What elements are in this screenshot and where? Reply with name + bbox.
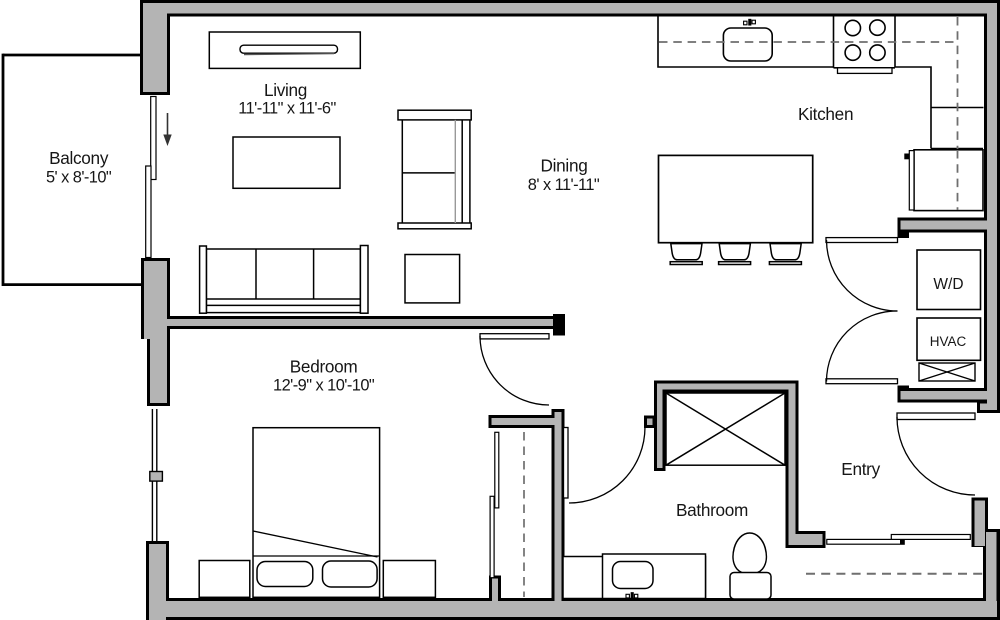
svg-text:HVAC: HVAC bbox=[930, 334, 967, 349]
svg-text:Living: Living bbox=[264, 80, 307, 100]
svg-text:Balcony: Balcony bbox=[49, 148, 109, 168]
svg-text:W/D: W/D bbox=[933, 276, 963, 293]
svg-text:11'-11" x 11'-6": 11'-11" x 11'-6" bbox=[238, 100, 336, 118]
svg-text:8' x 11'-11": 8' x 11'-11" bbox=[528, 176, 600, 194]
svg-text:Kitchen: Kitchen bbox=[798, 104, 853, 124]
svg-text:Dining: Dining bbox=[541, 156, 588, 176]
svg-text:Bedroom: Bedroom bbox=[290, 356, 358, 376]
svg-text:Entry: Entry bbox=[841, 459, 880, 479]
svg-text:5' x 8'-10": 5' x 8'-10" bbox=[46, 169, 112, 187]
svg-text:Bathroom: Bathroom bbox=[676, 500, 748, 520]
svg-text:12'-9" x 10'-10": 12'-9" x 10'-10" bbox=[273, 377, 375, 395]
